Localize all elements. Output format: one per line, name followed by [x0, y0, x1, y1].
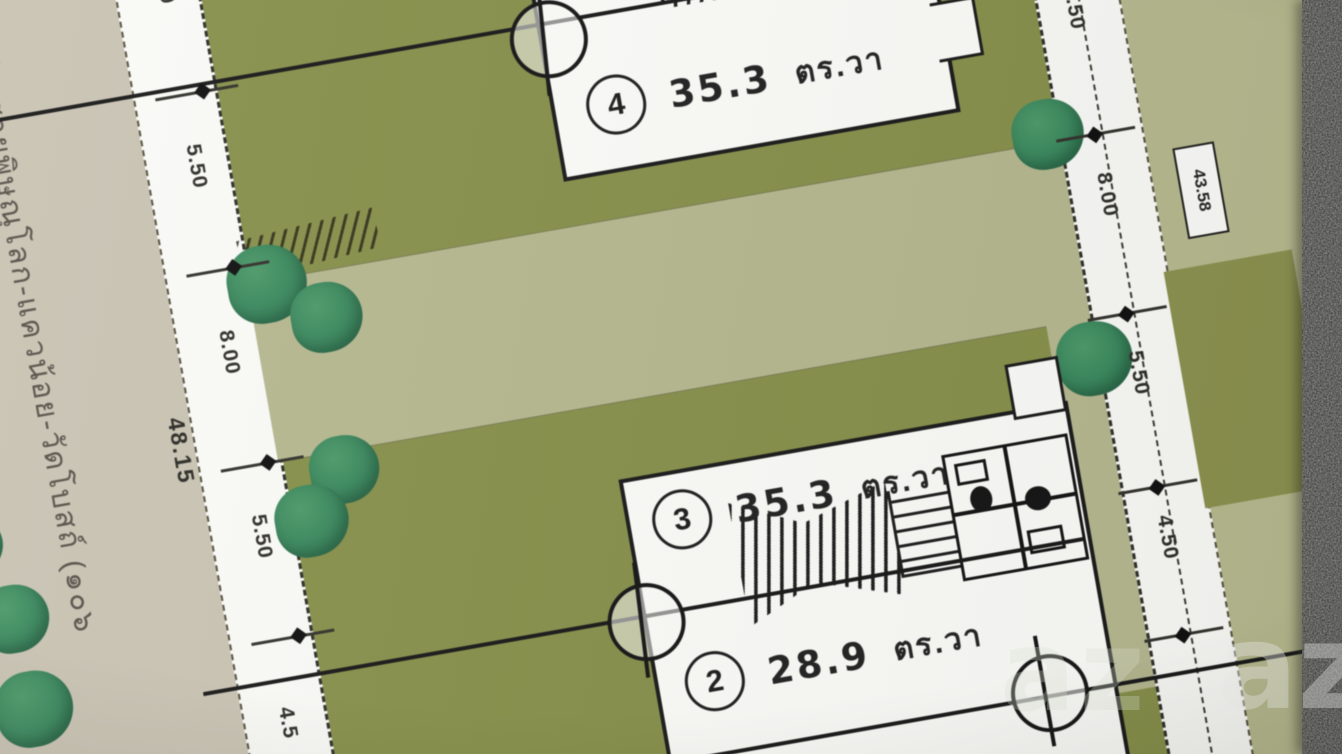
sink-fixture-icon: [954, 459, 989, 486]
plot-number: 3: [671, 500, 694, 538]
plot-area-unit: ตร.วา: [856, 448, 954, 513]
plot-number: 4: [605, 85, 628, 123]
plot-number-circle: 2: [680, 646, 750, 716]
watermark-text: az: [1000, 616, 1149, 728]
building-bottom-notch: [1004, 356, 1067, 421]
building-top-notch: [929, 0, 984, 63]
toilet-fixture-icon: [1023, 484, 1053, 512]
plot-area-value: 28.9: [764, 633, 873, 693]
photo-of-site-plan: วงแผ่นดินสายพิษณุโลก-แควน้อย-วัดโบสถ์ (๑…: [0, 0, 1342, 754]
plot-area-unit: ตร.วา: [790, 33, 888, 98]
plot-number-circle: 4: [581, 70, 651, 140]
plot-number: 2: [703, 662, 726, 700]
plot-area-unit: ตร.วา: [889, 609, 987, 674]
watermark-text: az: [1218, 608, 1342, 726]
plot-area-value: 35.3: [666, 56, 775, 116]
sink-fixture-icon: [1026, 525, 1066, 555]
plot-number-circle: 3: [648, 485, 718, 555]
plot-area-value: 35.3: [732, 471, 841, 531]
depth-total-label: 43.58: [1187, 168, 1214, 213]
